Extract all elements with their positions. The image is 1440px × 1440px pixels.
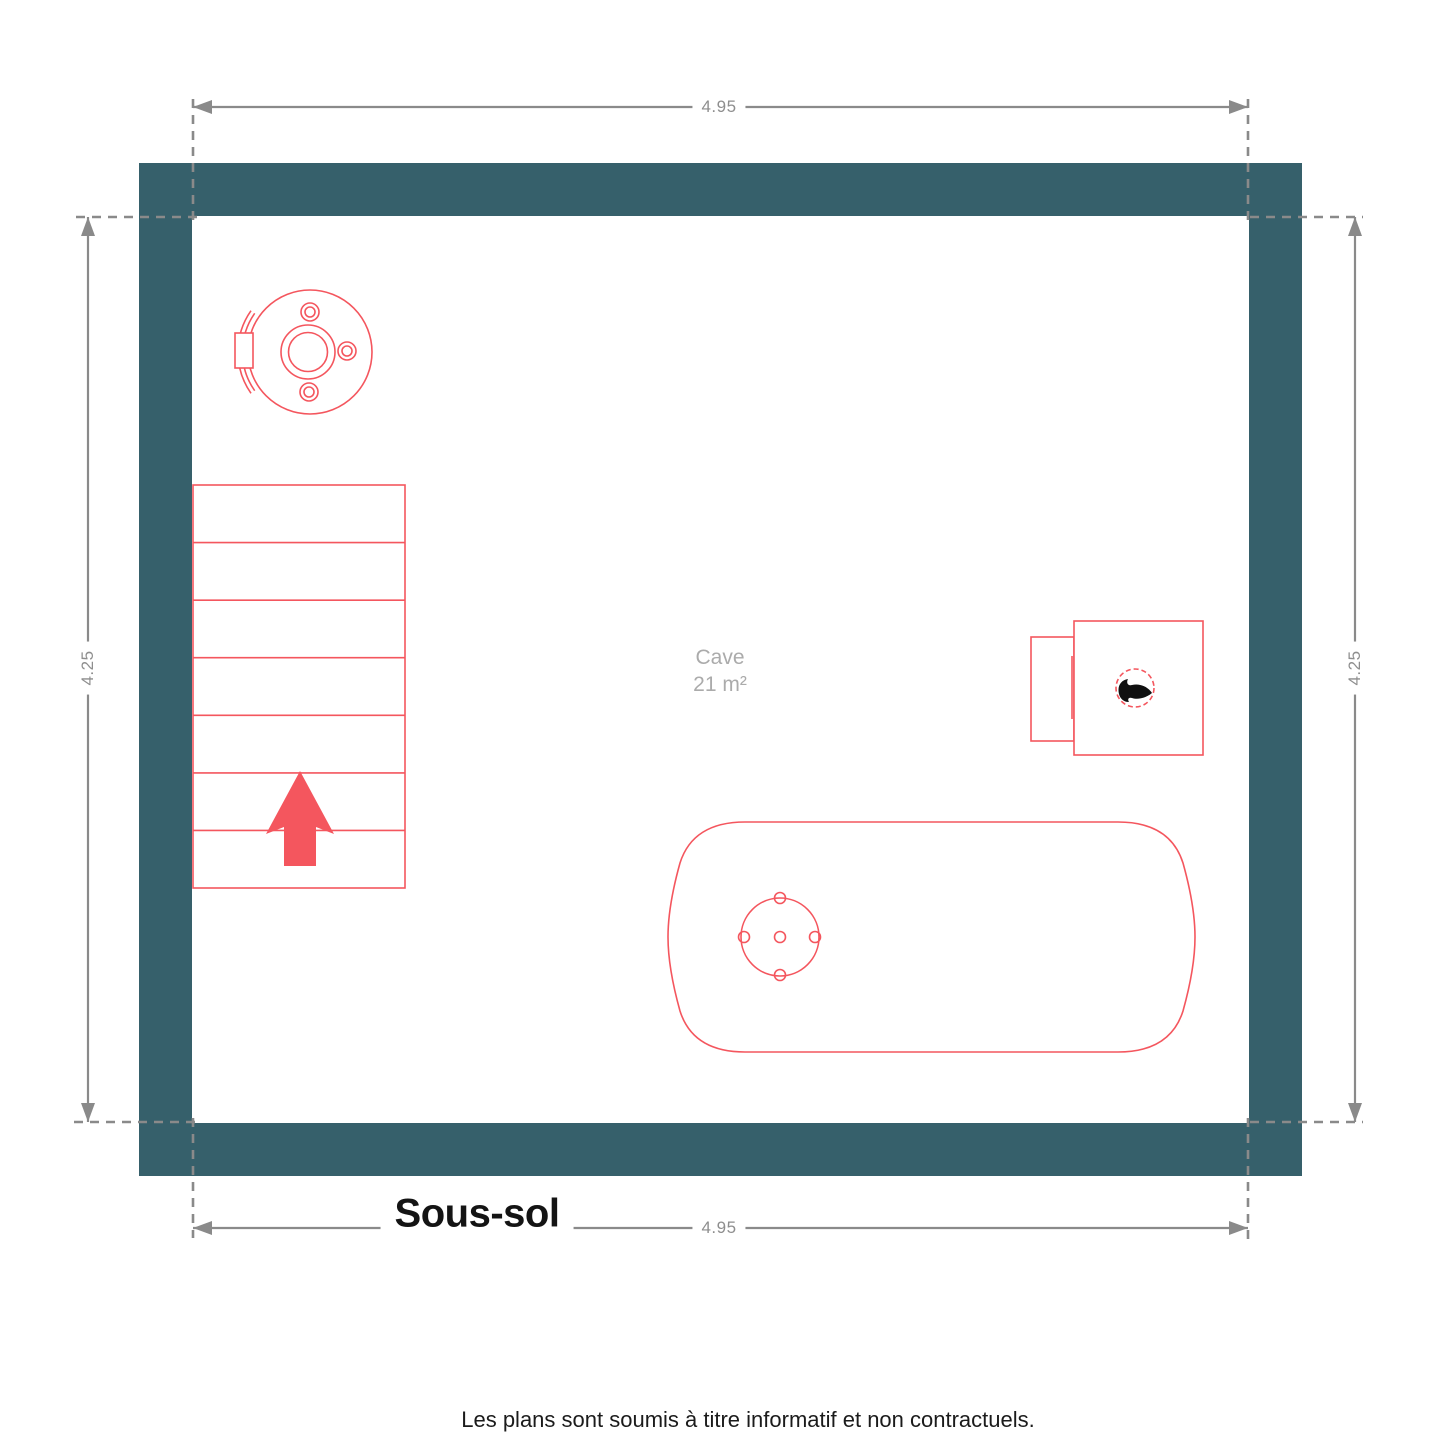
horizontal-water-tank: [668, 822, 1195, 1052]
dimension-bottom-label: 4.95: [692, 1217, 745, 1239]
arrow-down-icon: [1348, 1103, 1362, 1122]
room-area: 21 m²: [693, 671, 747, 698]
arrow-up-icon: [81, 217, 95, 236]
floor-title: Sous-sol: [381, 1190, 574, 1239]
dimension-right-label: 4.25: [1344, 641, 1366, 694]
room-label: Cave 21 m²: [693, 644, 747, 698]
arrow-left-icon: [193, 100, 212, 114]
furnace-unit: [1031, 621, 1203, 755]
dimension-left-label: 4.25: [77, 641, 99, 694]
arrow-left-icon: [193, 1221, 212, 1235]
arrow-down-icon: [81, 1103, 95, 1122]
arrow-right-icon: [1229, 100, 1248, 114]
arrow-right-icon: [1229, 1221, 1248, 1235]
dimension-top-label: 4.95: [692, 96, 745, 118]
room-name: Cave: [693, 644, 747, 671]
staircase: [193, 485, 405, 888]
disclaimer-text: Les plans sont soumis à titre informatif…: [461, 1407, 1035, 1433]
boiler-tank-top-view: [235, 290, 372, 414]
arrow-up-icon: [1348, 217, 1362, 236]
floorplan-page: 4.95 4.95 4.25 4.25 Cave 21 m² Sous-sol …: [0, 0, 1440, 1440]
